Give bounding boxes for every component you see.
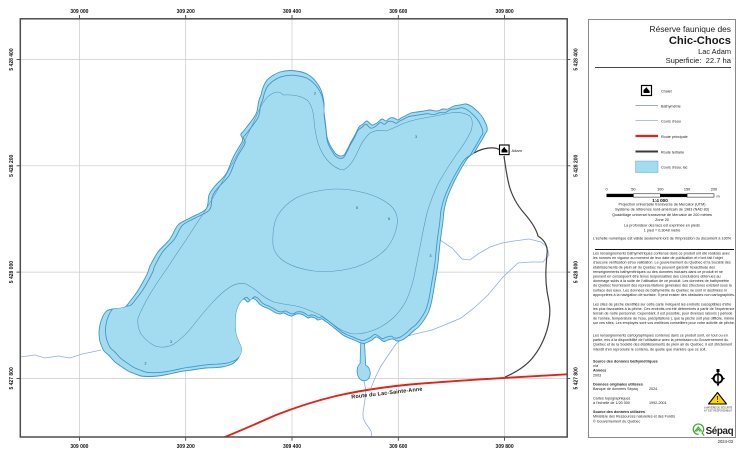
svg-text:309 800: 309 800 — [496, 9, 514, 15]
svg-text:309 000: 309 000 — [70, 444, 88, 450]
svg-text:309 400: 309 400 — [283, 9, 301, 15]
svg-text:5 427 800: 5 427 800 — [9, 367, 15, 389]
svg-text:309 800: 309 800 — [496, 444, 514, 450]
svg-text:5 428 400: 5 428 400 — [9, 48, 15, 70]
svg-text:309 200: 309 200 — [177, 444, 195, 450]
svg-text:TOUT EST RESPONSABILITÉ: TOUT EST RESPONSABILITÉ — [704, 410, 732, 413]
svg-text:309 200: 309 200 — [177, 9, 195, 15]
svg-text:m: m — [717, 195, 720, 199]
svg-text:2: 2 — [314, 92, 316, 96]
svg-text:Cours d'eau, lac: Cours d'eau, lac — [661, 166, 688, 170]
svg-text:Adam: Adam — [512, 148, 523, 153]
svg-text:5 428 200: 5 428 200 — [9, 154, 15, 176]
svg-text:309 400: 309 400 — [283, 444, 301, 450]
svg-text:5 428 400: 5 428 400 — [574, 48, 580, 70]
svg-text:200: 200 — [711, 188, 717, 192]
svg-text:3: 3 — [170, 340, 172, 344]
svg-text:Chalet: Chalet — [661, 90, 672, 94]
svg-text:Bathymétrie: Bathymétrie — [661, 105, 681, 109]
svg-text:Route tertiaire: Route tertiaire — [661, 151, 684, 155]
svg-text:5 428 000: 5 428 000 — [574, 261, 580, 283]
svg-text:Route du Lac-Sainte-Anne: Route du Lac-Sainte-Anne — [351, 387, 423, 401]
svg-text:3: 3 — [430, 254, 432, 258]
svg-text:5 428 000: 5 428 000 — [9, 261, 15, 283]
svg-text:0: 0 — [605, 188, 607, 192]
svg-text:100: 100 — [657, 188, 663, 192]
svg-text:3: 3 — [415, 135, 417, 139]
svg-text:5: 5 — [388, 217, 390, 221]
svg-text:150: 150 — [684, 188, 690, 192]
svg-text:Cours d'eau: Cours d'eau — [661, 120, 681, 124]
svg-text:50: 50 — [631, 188, 635, 192]
svg-text:Route principale: Route principale — [661, 135, 688, 139]
svg-text:5 427 800: 5 427 800 — [574, 367, 580, 389]
svg-text:5 428 200: 5 428 200 — [574, 154, 580, 176]
svg-text:309 600: 309 600 — [389, 9, 407, 15]
svg-text:5: 5 — [356, 206, 358, 210]
svg-text:2: 2 — [145, 362, 147, 366]
svg-text:309 000: 309 000 — [70, 9, 88, 15]
svg-text:309 600: 309 600 — [389, 444, 407, 450]
svg-text:Sépaq: Sépaq — [706, 426, 734, 437]
